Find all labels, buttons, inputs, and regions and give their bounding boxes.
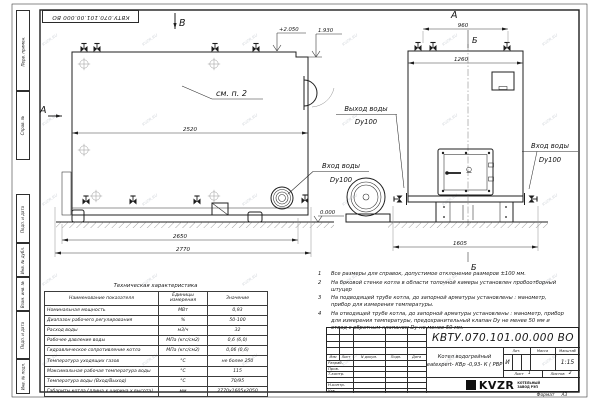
valve-icon — [302, 195, 309, 204]
spec-table-title: Техническая характеристика — [44, 283, 267, 291]
tb-sheet: Лист1 — [503, 370, 542, 377]
elevation-top: +2.050 — [273, 27, 306, 51]
margin-cell-sprav: Справ. № — [16, 90, 30, 160]
margin-cell-podp-data-2: Подп. и дата — [16, 310, 30, 360]
center-mark-icon — [78, 58, 90, 70]
svg-text:В: В — [179, 18, 186, 29]
dim-1605: 1605 — [393, 206, 538, 251]
svg-text:А: А — [39, 105, 47, 116]
furnace-door — [438, 149, 494, 195]
valve-icon — [130, 196, 137, 205]
notes-list: 1Все размеры для справок, допустимое отк… — [318, 271, 566, 333]
tb-mass-header: Масса — [530, 347, 555, 354]
control-panel — [492, 72, 514, 90]
valve-icon — [253, 44, 260, 53]
label-water-inlet-right: Вход воды Dy100 — [522, 142, 578, 189]
spec-table: Техническая характеристика Наименование … — [44, 283, 267, 397]
valve-icon — [415, 43, 422, 52]
section-mark-b-top: Б — [468, 30, 478, 48]
tb-header-data: Дата — [407, 354, 426, 360]
ground-hatch — [56, 222, 334, 228]
ground-hatch — [388, 222, 548, 228]
spec-row: Температура уходящих газов°Сне более 250 — [45, 356, 268, 366]
center-mark-icon — [78, 144, 90, 156]
boiler-side-view: 2520 2650 2770 см. п. 2 — [39, 13, 344, 257]
center-mark-icon — [208, 190, 220, 202]
valve-icon — [94, 44, 101, 53]
margin-cell-vzam-inv: Взам. инв. № — [16, 276, 30, 312]
svg-text:Б: Б — [472, 36, 478, 45]
draft-fan — [346, 178, 390, 222]
center-mark-icon — [90, 190, 102, 202]
tb-sheets: Листов2 — [542, 370, 580, 377]
top-stamp-text: КВТУ.070.101.00.000 ВО — [52, 14, 130, 20]
tb-lit-value: И — [503, 354, 512, 370]
svg-text:1.930: 1.930 — [318, 28, 334, 34]
tb-scale-header: Масштаб — [555, 347, 580, 354]
svg-text:см. п. 2: см. п. 2 — [216, 89, 247, 98]
svg-text:Вход воды: Вход воды — [531, 142, 570, 150]
svg-text:2520: 2520 — [183, 127, 197, 133]
svg-text:Вход воды: Вход воды — [322, 162, 361, 170]
drawing-sheet: KVZR.RUKVZR.RUKVZR.RUKVZR.RUKVZR.RUKVZR.… — [0, 0, 600, 400]
note-item: 3На подводящей трубе котла, до запорной … — [318, 295, 566, 309]
valve-icon — [529, 196, 538, 203]
margin-cell-podp-data-1: Подп. и дата — [16, 194, 30, 244]
front-view-title: А — [450, 10, 458, 21]
note-item: 2На боковой стенке котла в области топоч… — [318, 280, 566, 294]
spec-row: Рабочее давление водыМПа (кгс/см2)0,6 (6… — [45, 336, 268, 346]
dim-2520: 2520 — [72, 127, 308, 135]
svg-text:Выход воды: Выход воды — [344, 105, 388, 113]
spec-row: Расход водым3/ч32 — [45, 325, 268, 335]
section-mark-a: А — [39, 105, 62, 118]
water-inlet-flange — [271, 187, 293, 209]
elevation-step: 1.930 — [312, 28, 342, 57]
door-latch-icon — [467, 167, 472, 172]
tb-role-utv: Утв. — [328, 388, 353, 394]
spec-header-row: Наименование показателя Единицы измерени… — [45, 292, 268, 306]
valve-icon — [194, 196, 201, 205]
tb-header-podp: Подп. — [385, 354, 407, 360]
svg-text:2770: 2770 — [176, 247, 190, 253]
format-note: Формат А3 — [512, 393, 592, 398]
valve-icon — [394, 196, 403, 203]
valve-icon — [430, 43, 437, 52]
tb-organization: KVZR КОТЕЛЬНЫЙ ЗАВОД РЭП — [426, 377, 580, 393]
svg-text:+2.050: +2.050 — [279, 27, 299, 33]
section-mark-b-bottom: Б — [468, 252, 477, 272]
kvzr-logo-text: KVZR — [479, 379, 514, 392]
spec-row: Габариты котла (длина х ширина х высота)… — [45, 387, 268, 397]
title-block: Изм Лист N докум. Подп. Дата Разраб. Про… — [326, 327, 579, 392]
svg-text:960: 960 — [458, 23, 469, 29]
valve-icon — [81, 44, 88, 53]
valve-icon — [212, 44, 219, 53]
spec-row: Гидравлическое сопротивление котлаМПа (к… — [45, 346, 268, 356]
pedestal — [436, 202, 513, 222]
spec-row: Максимальная рабочая температура воды°С1… — [45, 366, 268, 376]
svg-text:1260: 1260 — [454, 57, 468, 63]
spec-row: Номинальная мощностьМВт0,93 — [45, 305, 268, 315]
tb-header-doc: N докум. — [353, 354, 385, 360]
margin-cell-inv-podl: Инв. № подл. — [16, 358, 30, 394]
margin-cell-perv-primen: Перв. примен. — [16, 10, 30, 92]
valve-icon — [504, 43, 511, 52]
svg-text:Dy100: Dy100 — [539, 156, 561, 164]
tb-lit-header: Лит. — [503, 347, 530, 354]
svg-text:1605: 1605 — [453, 241, 467, 247]
svg-text:Dy100: Dy100 — [355, 118, 377, 126]
spec-row: Температура воды (Вход/Выход)°С70/95 — [45, 376, 268, 386]
dim-960: 960 — [423, 23, 508, 43]
center-mark-icon — [208, 58, 220, 70]
spec-row: Диапазон рабочего регулирования%50-100 — [45, 315, 268, 325]
margin-cell-inv-dubl: Инв. № дубл. — [16, 242, 30, 278]
dim-1260: 1260 — [408, 57, 523, 65]
tb-doc-number: КВТУ.070.101.00.000 ВО — [426, 328, 580, 347]
tb-product-name: Котел водогрейный Heatexpert- КВр -0,93-… — [426, 347, 503, 377]
boiler-front-view: 960 1260 1605 Б Б — [388, 10, 548, 272]
svg-text:2650: 2650 — [173, 234, 187, 240]
svg-text:Dy100: Dy100 — [330, 176, 352, 184]
top-stamp: КВТУ.070.101.00.000 ВО — [42, 10, 139, 23]
callout-see-item2: см. п. 2 — [182, 86, 263, 99]
note-item: 1Все размеры для справок, допустимое отк… — [318, 271, 566, 278]
view-arrow-b: В — [173, 13, 185, 29]
valve-icon — [83, 196, 90, 205]
svg-text:0.000: 0.000 — [320, 210, 336, 216]
elevation-zero: 0.000 — [314, 210, 344, 222]
tb-scale-value: 1:15 — [555, 354, 580, 370]
kvzr-logo-icon — [466, 380, 476, 390]
